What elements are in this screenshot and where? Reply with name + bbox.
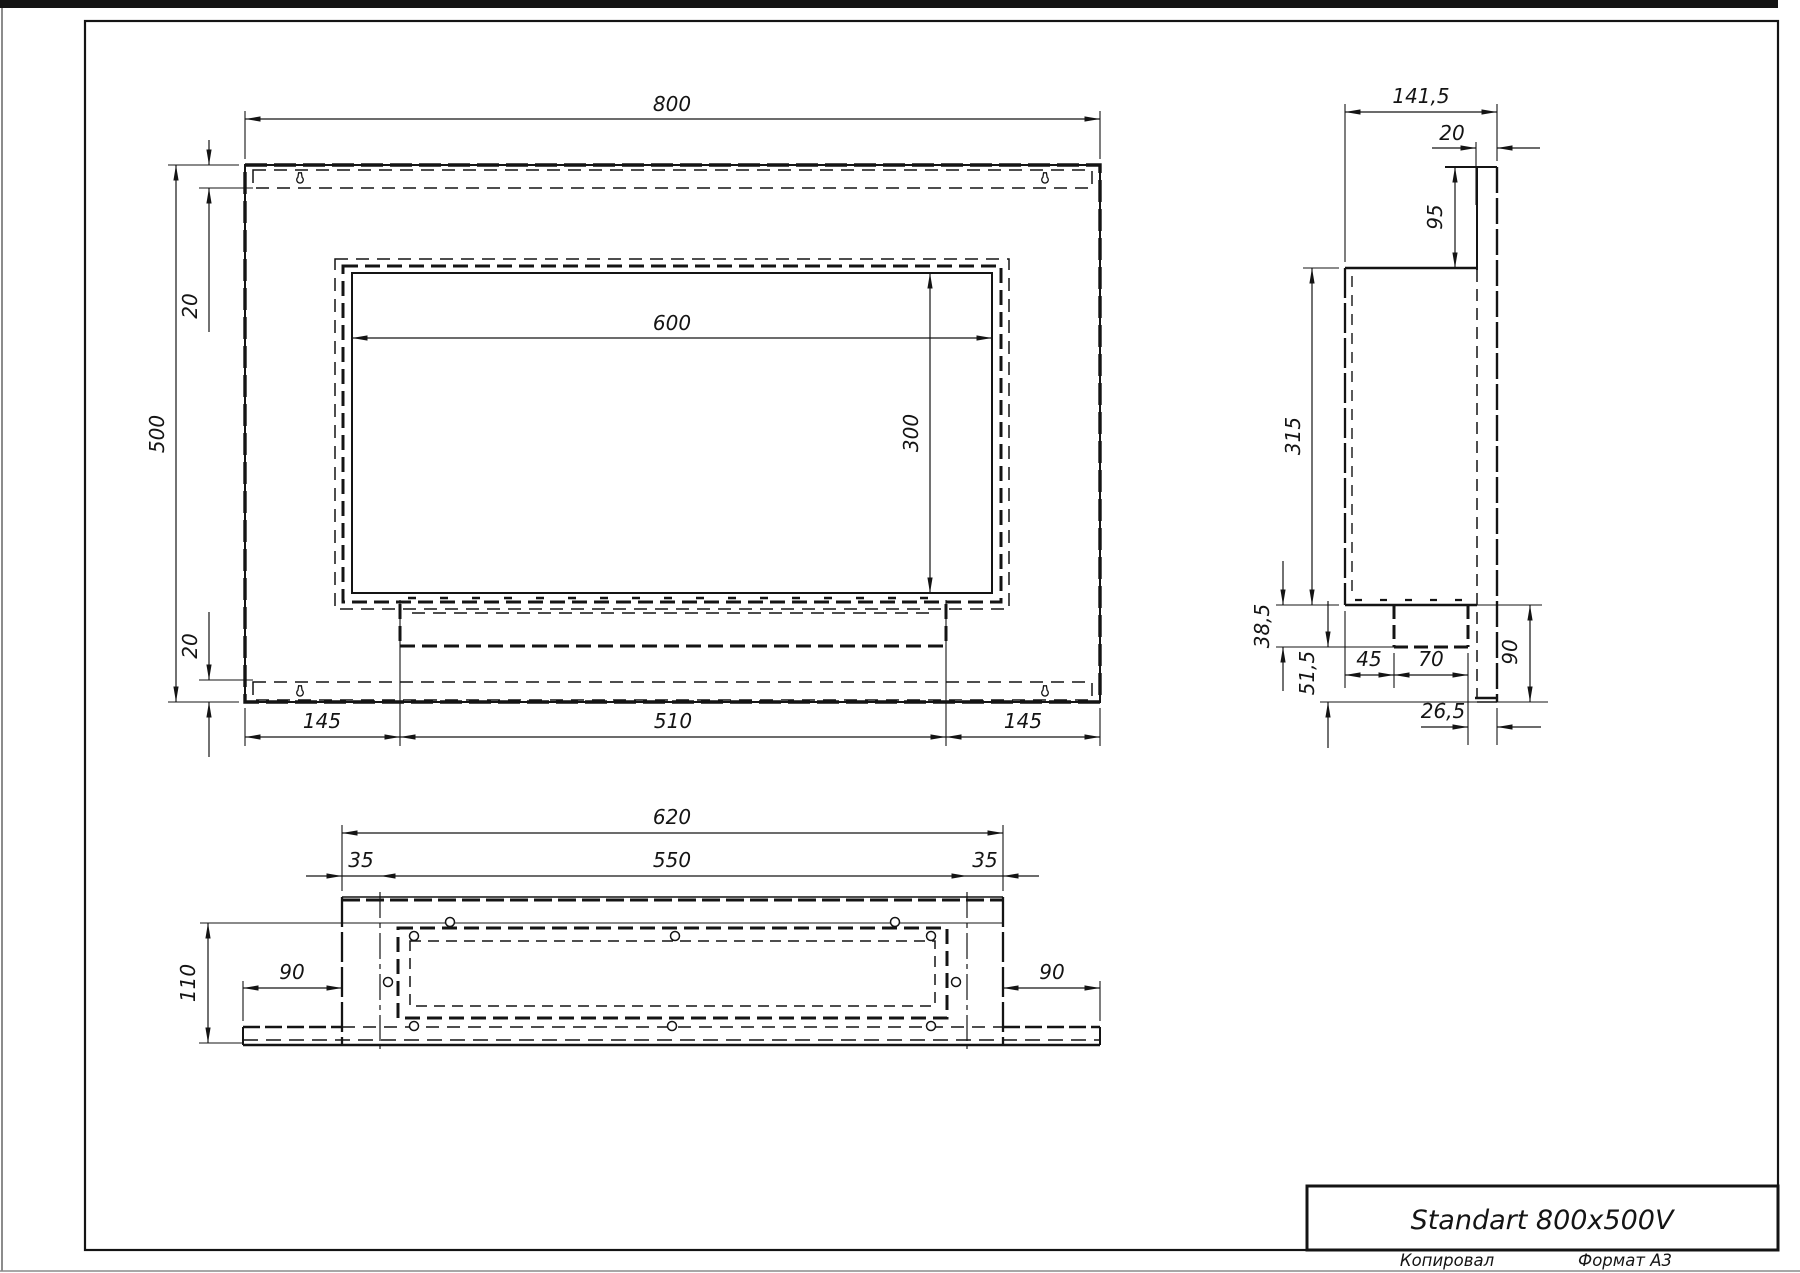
dim-label: 315: [1281, 417, 1305, 455]
screw-holes: [384, 918, 961, 1031]
title-block: Standart 800x500V: [1307, 1186, 1778, 1250]
dim-label: 145: [303, 709, 341, 733]
mounting-keyhole-icon: [1042, 173, 1049, 183]
drawing-frame: [85, 21, 1778, 1250]
dim-bottom-left-flange: 90: [243, 960, 342, 1021]
dim-label: 26,5: [1421, 699, 1466, 723]
footer-format-label: Формат А3: [1578, 1251, 1672, 1270]
dim-side-total-depth: 141,5: [1345, 84, 1497, 262]
wall-plate-hidden-top: [253, 170, 1092, 188]
screw-hole: [668, 1022, 677, 1031]
side-wall-plate: [1445, 167, 1497, 702]
dim-label: 800: [653, 92, 691, 116]
dim-bottom-right-flange: 90: [1003, 960, 1100, 1021]
burner-tray-hidden: [400, 598, 946, 646]
mounting-keyhole-icon: [1042, 686, 1049, 696]
side-burner-box: [1394, 605, 1468, 647]
dim-side-plate-thickness: 20: [1432, 121, 1540, 205]
dim-label: 20: [1439, 121, 1464, 145]
dim-label: 70: [1418, 647, 1443, 671]
drawing-canvas: 800 500 20 20 600: [0, 0, 1800, 1273]
screw-hole: [410, 932, 419, 941]
mounting-keyhole-icon: [297, 173, 304, 183]
dim-window-width: 600: [352, 311, 992, 338]
dim-label: 20: [178, 293, 202, 318]
dim-label: 90: [1498, 639, 1522, 664]
dim-front-top-inset: 20: [178, 140, 253, 332]
dim-label: 90: [279, 960, 304, 984]
screw-hole: [891, 918, 900, 927]
dim-label: 500: [145, 415, 169, 453]
screw-hole: [410, 1022, 419, 1031]
dim-label: 45: [1356, 647, 1381, 671]
front-panel-outline: [245, 165, 1100, 702]
screw-hole: [927, 1022, 936, 1031]
dim-side-front-offset: 45 70: [1345, 611, 1468, 745]
front-view: 800 500 20 20 600: [145, 92, 1100, 757]
screw-hole: [671, 932, 680, 941]
dim-front-bottom-inset: 20: [178, 612, 253, 757]
side-view: 141,5 20 95 315 38,5: [1250, 84, 1548, 748]
bottom-body-outline: [200, 892, 1003, 1049]
dim-label: 95: [1423, 204, 1447, 229]
dim-front-bottom-row: 145 510 145: [245, 600, 1100, 746]
dim-front-width: 800: [245, 92, 1100, 159]
footer-copied-label: Копировал: [1400, 1251, 1495, 1270]
wall-plate-hidden-bottom: [253, 682, 1092, 700]
dim-side-rear-offset: 26,5: [1421, 699, 1541, 745]
drawing-sheet: 800 500 20 20 600: [0, 0, 1800, 1273]
dim-label: 550: [653, 848, 691, 872]
dim-label: 38,5: [1250, 604, 1274, 649]
screw-hole: [952, 978, 961, 987]
dim-label: 510: [654, 709, 692, 733]
dim-label: 145: [1004, 709, 1042, 733]
dim-label: 620: [653, 805, 691, 829]
dim-label: 20: [178, 633, 202, 658]
dim-label: 35: [348, 848, 373, 872]
dim-side-plate-above-body: 95: [1423, 167, 1455, 268]
screw-hole: [384, 978, 393, 987]
dim-bottom-opening-row: 35 550 35: [306, 848, 1039, 876]
dim-bottom-body-depth: 110: [176, 923, 243, 1043]
dim-window-height: 300: [899, 273, 930, 593]
dim-label: 110: [176, 964, 200, 1002]
front-panel-dashed-overlay: [245, 165, 1100, 702]
sheet-top-edge-bar: [0, 0, 1778, 8]
dim-label: 51,5: [1295, 651, 1319, 696]
dim-label: 141,5: [1392, 84, 1449, 108]
dim-label: 600: [653, 311, 691, 335]
dim-label: 35: [972, 848, 997, 872]
mounting-keyhole-icon: [297, 686, 304, 696]
dim-side-body-height: 315: [1276, 268, 1339, 605]
dim-side-lower-height: 90: [1477, 605, 1548, 702]
drawing-title: Standart 800x500V: [1411, 1205, 1676, 1236]
dim-label: 90: [1039, 960, 1064, 984]
screw-hole: [927, 932, 936, 941]
dim-front-height: 500: [145, 165, 239, 702]
screw-hole: [446, 918, 455, 927]
bottom-view: 620 35 550 35 110 90 90: [176, 805, 1100, 1049]
side-body: [1345, 268, 1477, 605]
dim-label: 300: [899, 414, 923, 452]
dim-side-burner-box-height: 38,5: [1250, 561, 1394, 691]
